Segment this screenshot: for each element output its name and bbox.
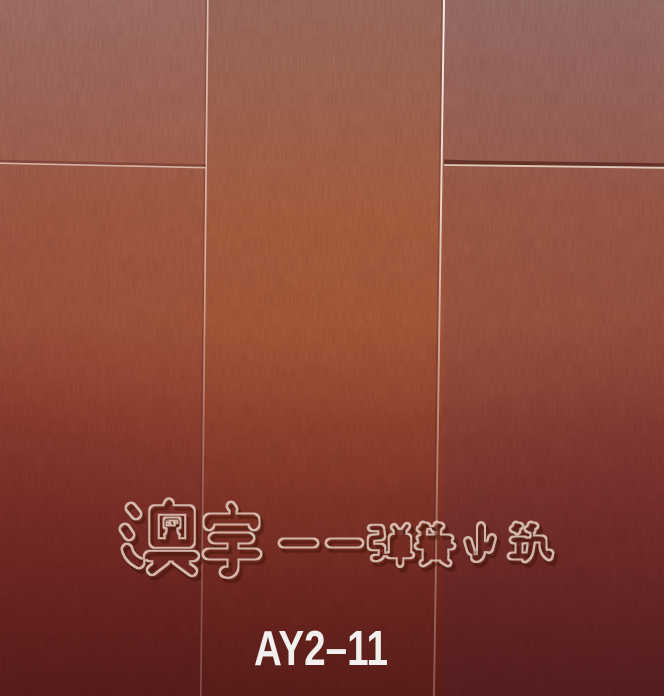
svg-text:AY2–11: AY2–11 xyxy=(254,622,388,676)
